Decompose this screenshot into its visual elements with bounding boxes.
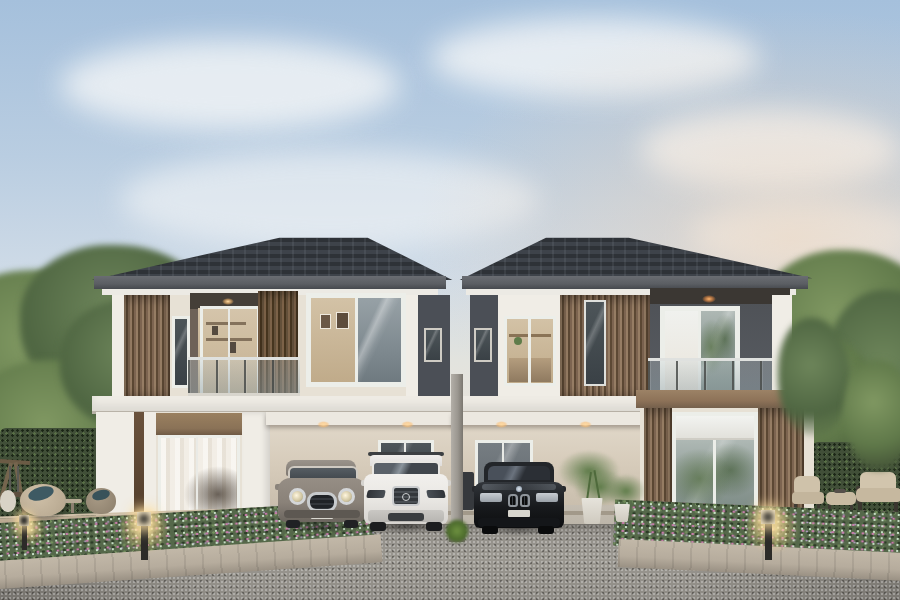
left-glass-door [158,435,240,516]
balcony-downlight [222,298,234,305]
wall-art [336,312,349,329]
car-sedan-plate [508,510,530,517]
car-mini [278,458,366,530]
car-sedan [474,462,564,534]
armchair-seat [792,492,824,504]
left-slat-panel [124,295,170,398]
bollard-lamp-head [137,512,151,526]
bollard-lamp-post [141,524,148,560]
car-suv [364,452,448,532]
car-suv-headlight [366,490,386,498]
roller-valance [156,413,242,435]
pod-chair [0,490,16,512]
car-suv-wheel [370,522,386,531]
right-slat-window-strip [584,300,606,386]
car-mini-bumper [284,510,360,518]
carport-downlight [401,421,414,428]
tree-foliage-foreground [778,318,850,436]
left-balcony-railing [188,357,300,397]
left-main-window-pane-cool [358,298,401,382]
module-roller-shade [676,416,754,440]
bollard-lamp-head [761,510,775,524]
car-sedan-badge [516,486,522,492]
wall-art [320,314,331,329]
palm-foliage [606,474,646,508]
car-mini-headlight [338,488,355,505]
carport-downlight [579,421,592,428]
balcony-downlight [702,295,716,303]
swing-rope [17,466,19,493]
armchair-seat [856,488,900,502]
car-suv-emblem [402,493,410,501]
car-mini-wheel [286,520,300,528]
car-mini-headlight [289,488,306,505]
car-suv-wheel [426,522,442,531]
car-suv-intake [388,513,424,521]
side-table-leg [71,503,74,513]
car-suv-headlight [426,490,446,498]
right-balcony-header [650,288,790,304]
window-mullion [355,298,358,382]
bollard-lamp-head [19,515,29,526]
centre-post [451,374,463,540]
car-sedan-wheel [482,526,498,534]
car-sedan-headlight [536,493,558,502]
door-mullion [196,437,198,514]
carport-beam [266,412,456,425]
carport-downlight [495,421,508,428]
car-sedan-kidney-grille [520,494,530,507]
left-upper-trim [406,295,418,398]
window-mullion [528,318,531,384]
carport-beam [452,412,648,425]
left-main-window-pane-warm [311,298,355,382]
car-sedan-windshield [488,466,550,480]
bollard-lamp-post [765,522,772,560]
car-mini-wheel [344,520,358,528]
car-mini-grille [307,492,337,512]
left-upper-corner [112,295,124,398]
left-house-fascia [94,276,446,289]
car-sedan-wheel [538,526,554,534]
right-corner-small-window [474,328,492,362]
car-sedan-headlight [480,493,502,502]
interior-plant [514,337,522,345]
ottoman-tray [834,489,846,493]
swing-rope [9,466,11,493]
left-corner-small-window [424,328,442,362]
ottoman-table [826,492,856,505]
exterior-render-scene [0,0,900,600]
tree-foliage-foreground [844,360,900,470]
bollard-lamp-small [22,524,27,550]
carport-downlight [317,421,330,428]
car-sedan-kidney-grille [508,494,518,507]
